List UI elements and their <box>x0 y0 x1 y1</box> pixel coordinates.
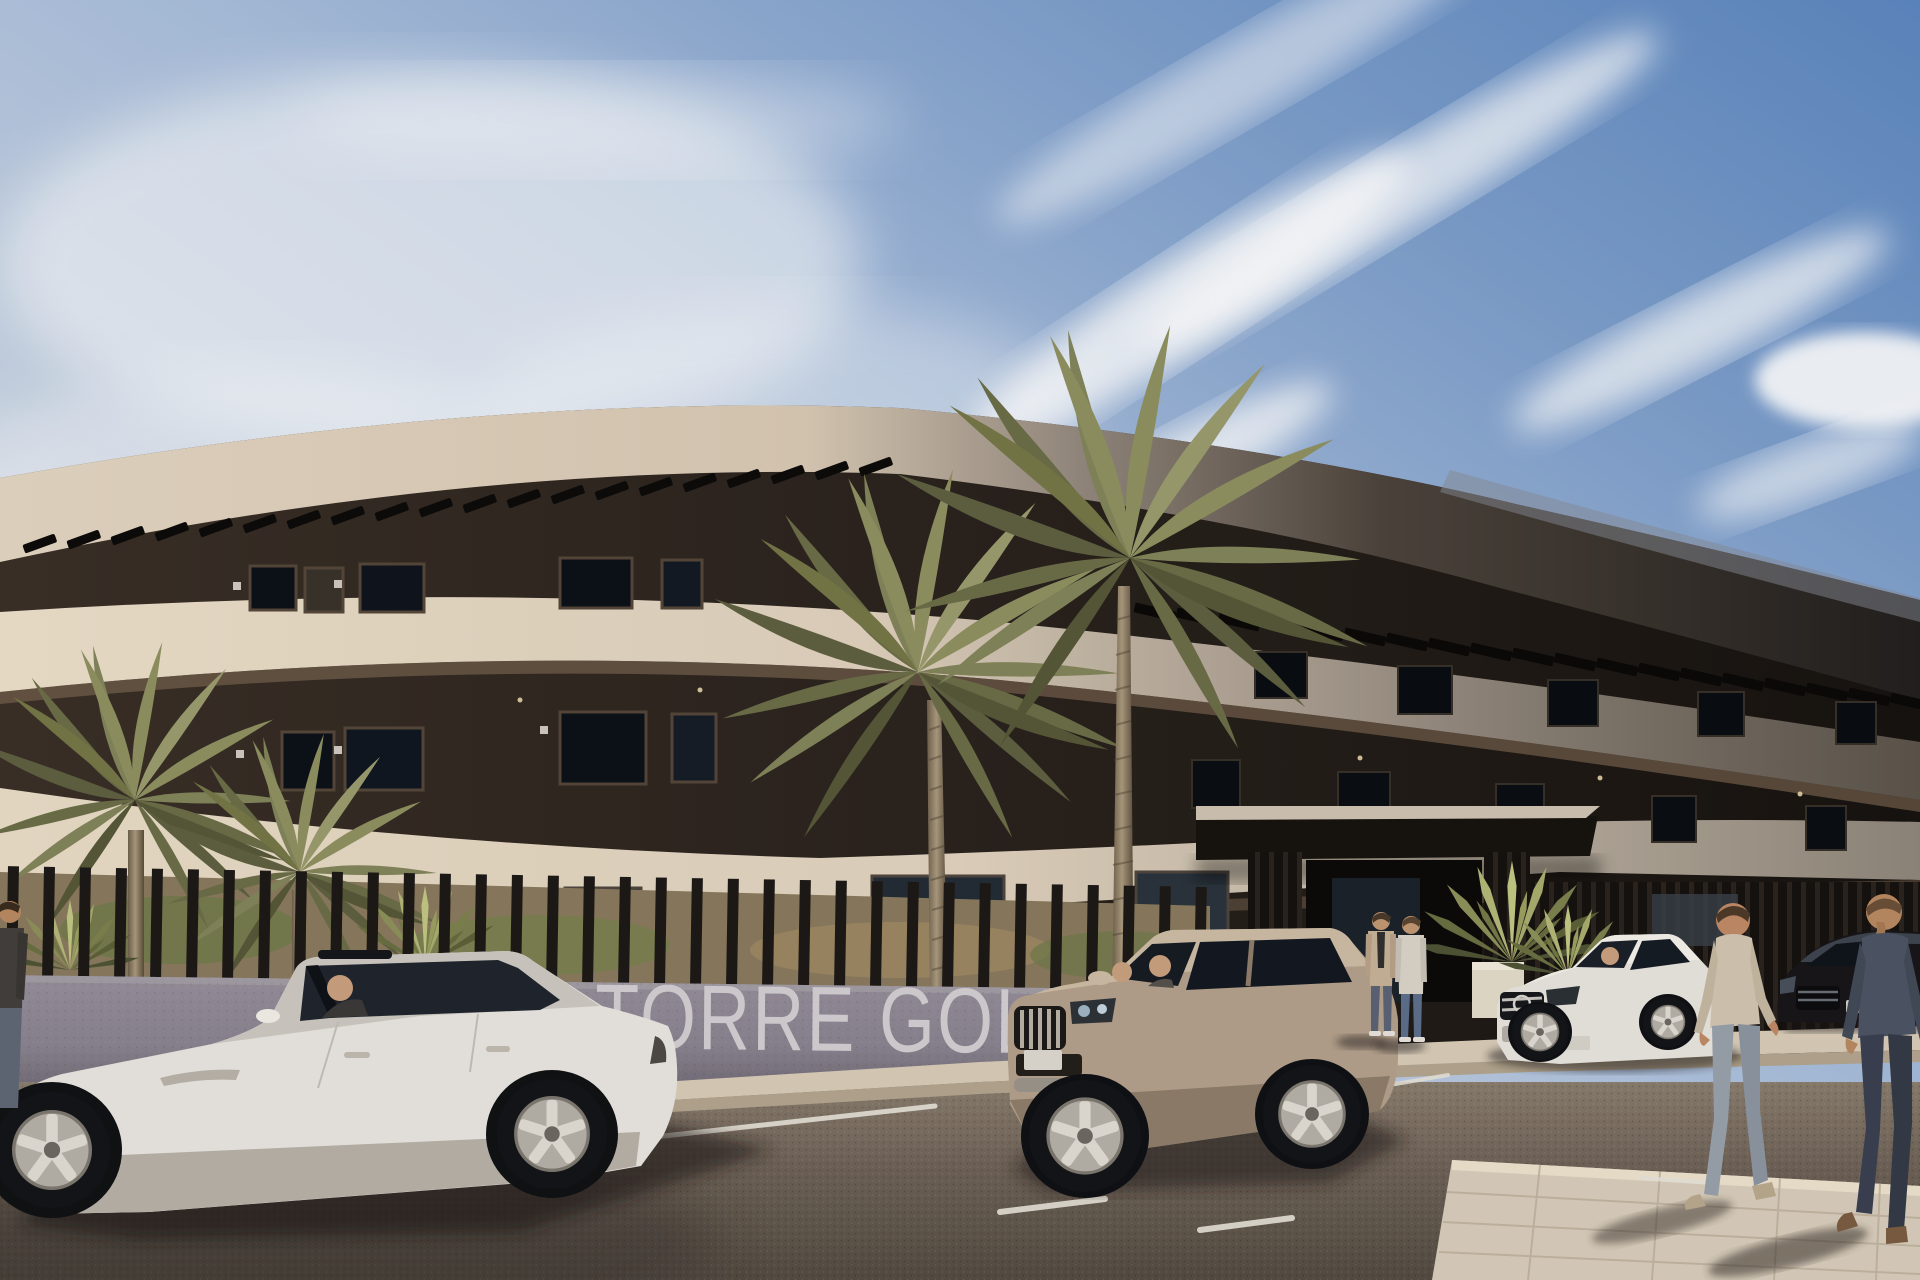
render-image: TORRE GOLF <box>0 0 1920 1280</box>
vignette <box>0 0 1920 1280</box>
scene-canvas: TORRE GOLF <box>0 0 1920 1280</box>
